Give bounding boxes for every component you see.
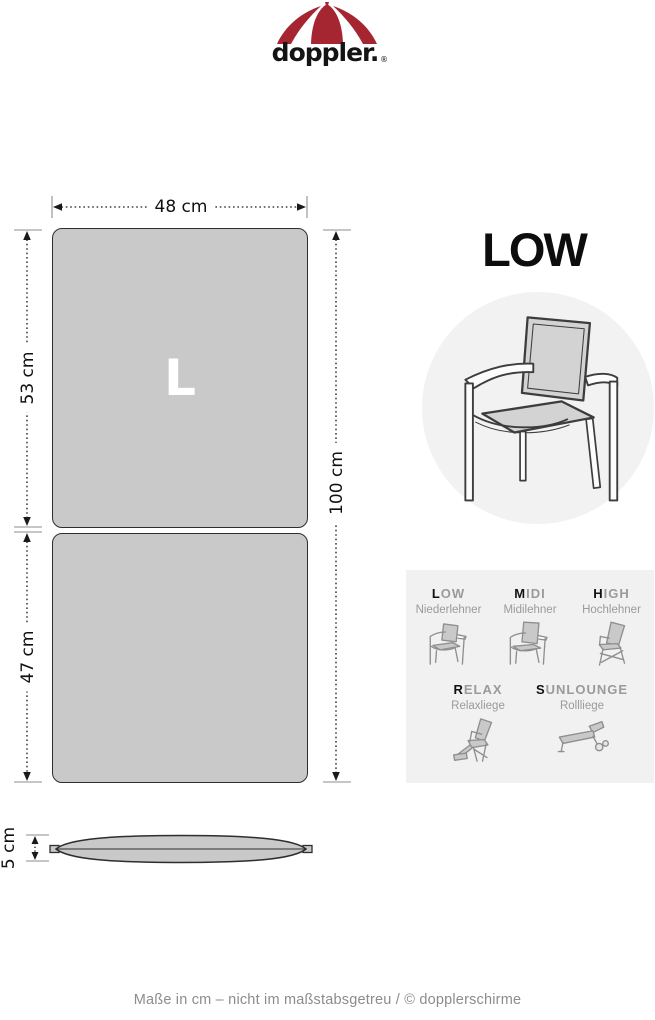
product-dimension-sheet: doppler. ® L 48 cm 53 cm [0,0,655,1020]
dimension-thickness: 5 cm [18,828,52,868]
dimension-total-value: 100 cm [326,443,348,523]
cushion-backrest-panel: L [52,228,308,528]
dimension-back-value: 53 cm [17,344,39,413]
type-item-sunlounge: SUNLOUNGE Rollliege [543,682,621,764]
type-item-relax: RELAX Relaxliege [439,682,517,764]
type-row-2: RELAX Relaxliege SUNLOUNGE Rollliege [406,682,654,764]
low-armchair-icon [448,308,628,508]
chair-high-icon [587,621,637,668]
cushion-seat-panel [52,533,308,783]
type-subtitle: Niederlehner [416,604,482,616]
type-subtitle: Midilehner [503,604,556,616]
chair-type-legend: LOW Niederlehner MIDI Midilehner [406,570,654,783]
brand-wordmark: doppler. [272,38,379,66]
variant-title: LOW [420,224,648,276]
type-item-midi: MIDI Midilehner [491,586,569,668]
dimension-width: 48 cm [40,193,322,221]
recliner-icon [451,717,505,764]
umbrella-icon: doppler. ® [262,2,392,66]
type-item-low: LOW Niederlehner [410,586,488,668]
variant-illustration-circle [422,292,654,524]
type-title: RELAX [453,682,502,697]
type-subtitle: Relaxliege [451,700,505,712]
dimension-back-length: 53 cm [13,224,43,532]
cushion-side-view [48,831,314,867]
chair-low-icon [424,621,474,668]
chair-midi-icon [505,621,555,668]
type-title: SUNLOUNGE [536,682,628,697]
footer-note: Maße in cm – nicht im maßstabsgetreu / ©… [0,992,655,1008]
dimension-seat-value: 47 cm [17,623,39,692]
dimension-thickness-value: 5 cm [0,827,19,869]
cushion-size-label: L [164,353,196,403]
dimension-total-length: 100 cm [322,224,352,787]
type-title: LOW [432,586,465,601]
type-title: HIGH [593,586,630,601]
dimension-line-vertical [18,828,52,868]
type-title: MIDI [514,586,545,601]
type-subtitle: Rollliege [560,700,604,712]
dimension-seat-length: 47 cm [13,528,43,786]
type-row-1: LOW Niederlehner MIDI Midilehner [406,586,654,668]
dimension-width-value: 48 cm [149,196,214,218]
type-item-high: HIGH Hochlehner [573,586,651,668]
brand-logo: doppler. ® [262,2,392,66]
registered-mark: ® [380,55,388,64]
sunlounger-icon [553,717,611,759]
type-subtitle: Hochlehner [582,604,641,616]
